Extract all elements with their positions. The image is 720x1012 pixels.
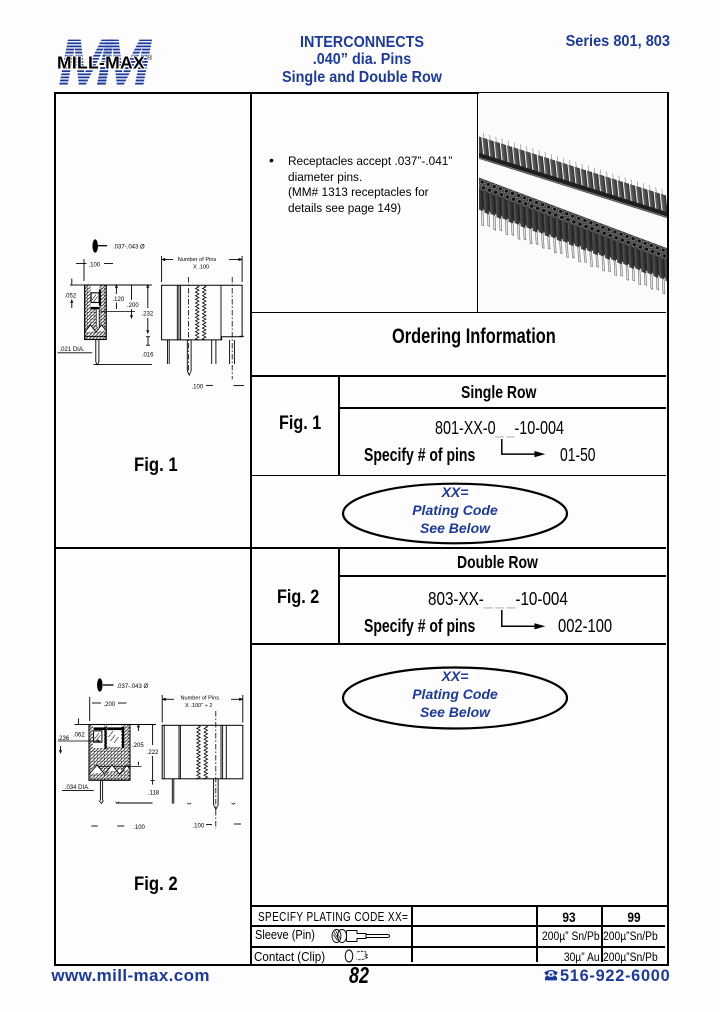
svg-text:.016: .016 <box>142 353 154 359</box>
svg-text:.100: .100 <box>89 263 101 269</box>
svg-text:.037-.043 Ø: .037-.043 Ø <box>113 245 145 251</box>
svg-text:.100: .100 <box>192 384 204 390</box>
svg-text:.200: .200 <box>104 702 116 708</box>
svg-text:.034 DIA.: .034 DIA. <box>65 785 90 791</box>
svg-text:X .100: X .100 <box>193 265 209 271</box>
svg-text:®: ® <box>147 54 153 62</box>
svg-text:.037-.043 Ø: .037-.043 Ø <box>117 684 149 690</box>
svg-text:.118: .118 <box>148 791 160 797</box>
svg-text:.062: .062 <box>73 733 85 739</box>
svg-text:.232: .232 <box>142 312 154 318</box>
svg-text:MILL-MAX: MILL-MAX <box>57 53 145 73</box>
svg-text:.200: .200 <box>127 303 139 309</box>
svg-text:.100: .100 <box>133 825 145 831</box>
svg-text:Number of Pins: Number of Pins <box>178 257 217 263</box>
svg-text:.205: .205 <box>132 743 144 749</box>
svg-text:Number of Pins: Number of Pins <box>181 695 220 701</box>
svg-text:.021 DIA.: .021 DIA. <box>60 347 85 353</box>
svg-text:X .100" ÷ 2: X .100" ÷ 2 <box>185 703 212 709</box>
svg-text:.222: .222 <box>147 750 159 756</box>
svg-text:.052: .052 <box>65 294 77 300</box>
svg-text:.100: .100 <box>193 824 205 830</box>
svg-text:.120: .120 <box>113 297 125 303</box>
